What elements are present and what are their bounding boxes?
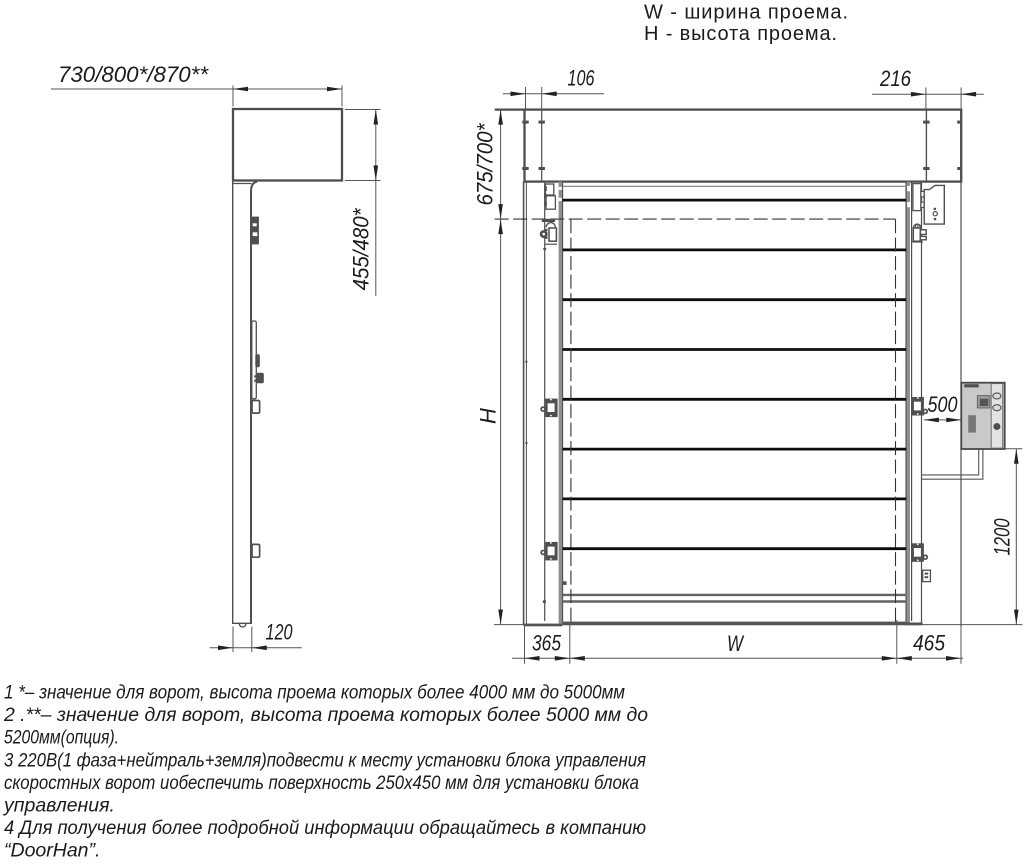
svg-text:1200: 1200 <box>990 518 1015 556</box>
svg-text:500: 500 <box>928 392 959 417</box>
svg-text:2 .**– значение для ворот,: 2 .**– значение для ворот, высота проема… <box>3 704 648 726</box>
svg-text:скоростных ворот иобеспечить п: скоростных ворот иобеспечить поверхность… <box>4 772 639 794</box>
svg-text:4 Для получения более под: 4 Для получения более подробной информац… <box>4 817 646 839</box>
svg-text:5200мм(опция).: 5200мм(опция). <box>4 727 119 749</box>
svg-text:управления.: управления. <box>2 795 115 817</box>
svg-text:W - ширина проема.: W - ширина проема. <box>644 2 848 24</box>
svg-text:465: 465 <box>913 631 946 656</box>
svg-text:3 220В(1 фаза+нейтраль+земля): 3 220В(1 фаза+нейтраль+земля)подвести к … <box>4 749 646 771</box>
svg-text:675/700*: 675/700* <box>473 122 498 205</box>
svg-text:W: W <box>727 631 745 656</box>
svg-text:455/480*: 455/480* <box>349 207 374 290</box>
svg-text:120: 120 <box>266 620 294 645</box>
svg-text:216: 216 <box>879 66 911 91</box>
svg-text:1 *– значение для ворот, высо: 1 *– значение для ворот, высота проема к… <box>4 682 625 704</box>
svg-text:H - высота проема.: H - высота проема. <box>644 23 837 45</box>
svg-text:H: H <box>476 408 501 424</box>
svg-text:365: 365 <box>532 631 562 656</box>
svg-text:106: 106 <box>568 66 596 91</box>
svg-text:730/800*/870**: 730/800*/870** <box>58 62 209 87</box>
svg-text:“DoorHan”.: “DoorHan”. <box>4 840 100 862</box>
